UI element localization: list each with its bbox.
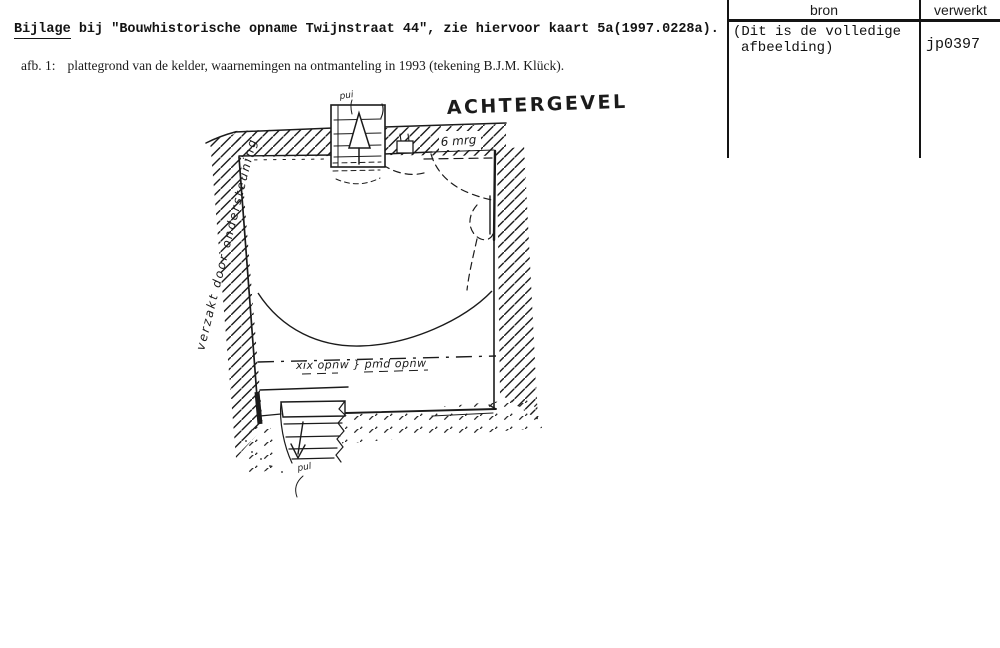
- attachment-title-rest: bij "Bouwhistorische opname Twijnstraat …: [71, 22, 719, 37]
- figure-caption: afb. 1:plattegrond van de kelder, waarne…: [21, 58, 564, 74]
- table-cell-verwerkt-value: jp0397: [926, 37, 980, 53]
- staircase: [281, 401, 345, 497]
- stair-note: pul: [296, 462, 313, 475]
- figure-caption-label: afb. 1:: [21, 58, 56, 73]
- cellar-plan-sketch: ACHTERGEVEL 6 mrg pui verzakt door onder…: [150, 80, 620, 510]
- dashed-observation-lines: [383, 154, 493, 290]
- attachment-title: Bijlage bij "Bouwhistorische opname Twij…: [14, 22, 719, 37]
- attachment-title-word: Bijlage: [14, 22, 71, 39]
- table-cell-bron-line2: afbeelding): [741, 40, 833, 56]
- table-header-rule: [727, 19, 1000, 22]
- gable-label: ACHTERGEVEL: [446, 91, 628, 119]
- table-left-border: [727, 0, 729, 158]
- wall-note: 6 mrg: [440, 133, 477, 149]
- shaft-note: pui: [338, 90, 355, 102]
- light-shaft: [331, 100, 413, 184]
- table-column-divider: [919, 0, 921, 158]
- figure-caption-text: plattegrond van de kelder, waarnemingen …: [68, 58, 565, 73]
- dashline-note: xix opnw } pmd opnw: [295, 357, 427, 372]
- vault-curve: [258, 291, 492, 346]
- document-page: Bijlage bij "Bouwhistorische opname Twij…: [0, 0, 1000, 648]
- wall-niche: [397, 141, 413, 153]
- table-header-verwerkt: verwerkt: [921, 2, 1000, 18]
- table-header-bron: bron: [729, 2, 919, 18]
- table-cell-bron-line1: (Dit is de volledige: [733, 24, 901, 40]
